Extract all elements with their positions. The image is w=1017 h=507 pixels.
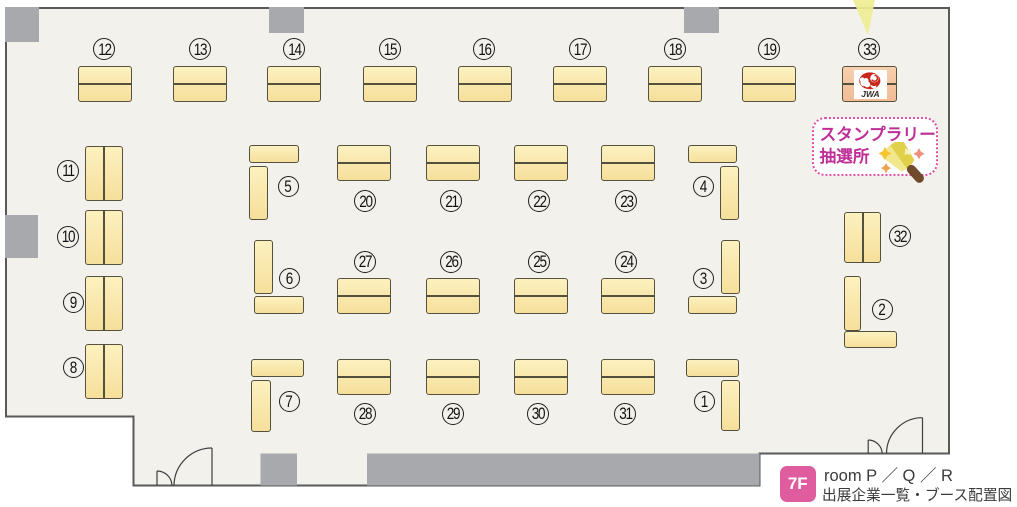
svg-text:JWA: JWA	[861, 89, 879, 99]
